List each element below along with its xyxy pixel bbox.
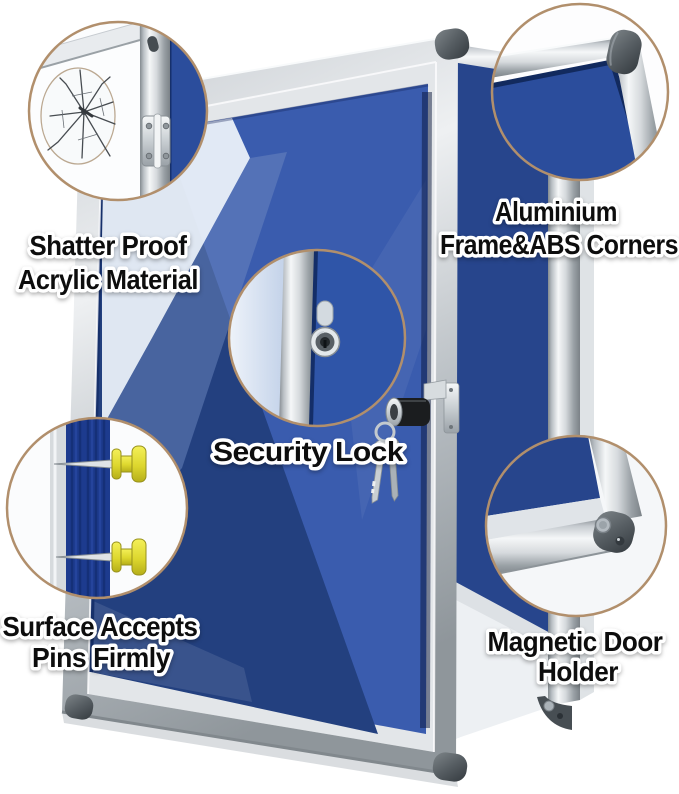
hinge-icon xyxy=(142,114,170,168)
crack-icon xyxy=(41,68,115,164)
notice-board-diagram: Shatter Proof Acrylic Material Aluminium… xyxy=(0,0,679,794)
label-magnetic-line1: Magnetic Door xyxy=(488,626,664,657)
lock-keyway xyxy=(390,404,398,420)
screw-icon xyxy=(616,537,625,546)
backing-edge xyxy=(50,416,66,600)
label-aluminium-line2: Frame&ABS Corners xyxy=(440,229,678,260)
label-pin-surface-line1: Surface Accepts xyxy=(3,611,198,642)
screw-icon xyxy=(449,425,453,429)
label-shatter-proof-line1: Shatter Proof xyxy=(30,230,188,261)
key-teeth xyxy=(371,489,375,493)
product-feature-image: Shatter Proof Acrylic Material Aluminium… xyxy=(0,0,679,794)
screw-icon xyxy=(557,713,563,719)
label-aluminium-line1: Aluminium xyxy=(495,196,617,227)
screw-highlight xyxy=(617,538,620,541)
label-pin-surface-line2: Pins Firmly xyxy=(32,642,171,673)
label-magnetic-line2: Holder xyxy=(538,656,619,687)
lock-cam xyxy=(424,380,446,400)
label-shatter-proof-line2: Acrylic Material xyxy=(18,264,198,295)
screw-icon xyxy=(449,388,453,392)
magnet-center xyxy=(599,521,607,529)
label-security-lock: Security Lock xyxy=(213,436,404,467)
magnet-icon xyxy=(544,701,554,711)
